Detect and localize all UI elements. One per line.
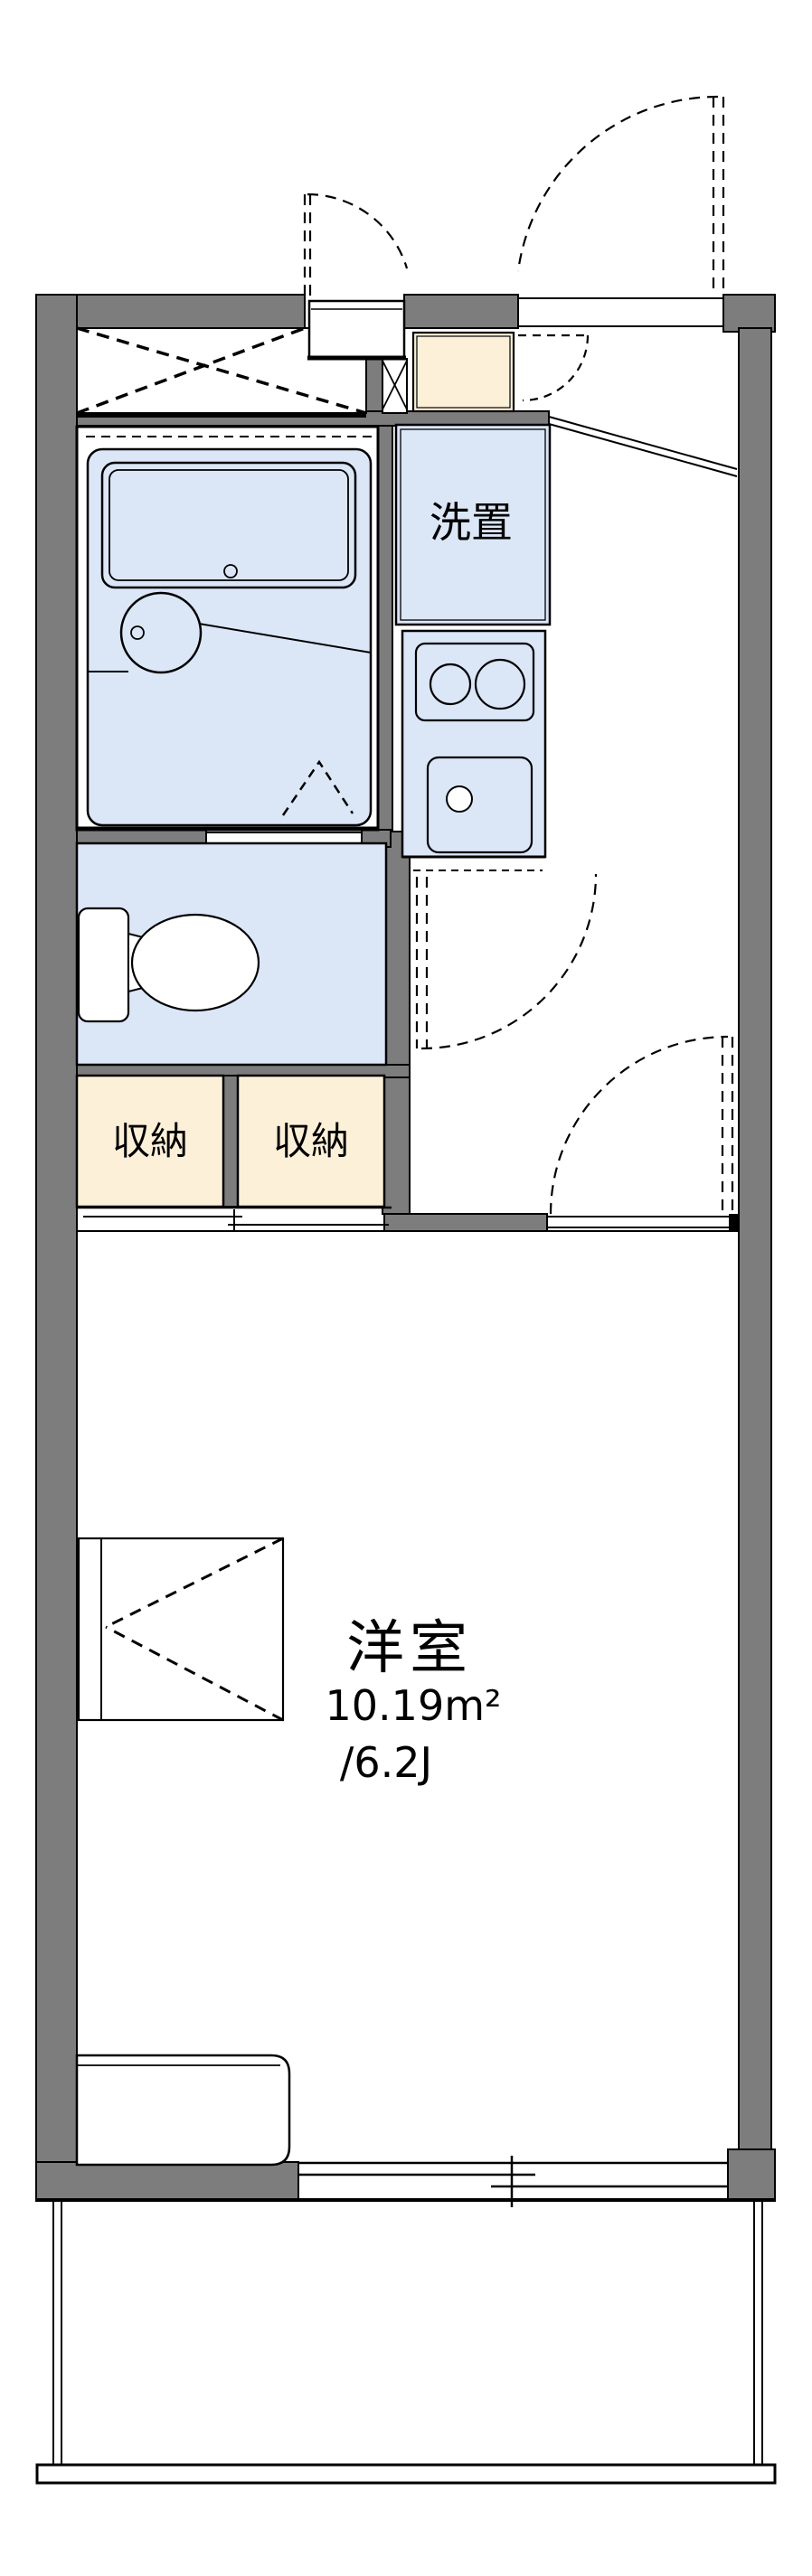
sink-drain-icon [447, 786, 472, 812]
main-room-top-wall [384, 1214, 547, 1231]
left-wall [36, 295, 77, 2201]
floor-plan-drawing: 収納 収納 洗置 [0, 0, 812, 2576]
storage-left-label: 収納 [112, 1119, 188, 1163]
bathroom-right-wall [378, 426, 392, 832]
genkan-step [518, 335, 737, 476]
pipe-shaft [382, 359, 407, 413]
bay-window-box [79, 1538, 283, 1720]
entrance-door-leaf [713, 97, 723, 296]
washroom-door-leaf [417, 877, 427, 1048]
toilet-tank [79, 908, 128, 1021]
alcove-door-arc [307, 194, 407, 268]
burner-left-icon [430, 664, 470, 704]
burner-right-icon [476, 660, 524, 709]
washroom-door-arc [421, 874, 596, 1048]
balcony-right-rail [754, 2201, 762, 2465]
top-wall-right-corner [723, 295, 775, 332]
entrance-alcove [307, 301, 406, 359]
washroom-door-swing [417, 874, 596, 1048]
toilet-room [77, 843, 386, 1065]
kitchen [402, 631, 545, 870]
alcove-door-swing [305, 194, 407, 296]
shoe-cabinet-box [413, 333, 514, 411]
bed [77, 2055, 289, 2165]
bed-outline [77, 2055, 289, 2165]
kitchen-sink [428, 757, 532, 852]
room-area-tatami-label: /6.2J [340, 1738, 432, 1787]
shoe-cabinet [413, 333, 514, 411]
balcony [37, 2201, 775, 2483]
main-room-door-swing [551, 1037, 732, 1214]
storage-right-label: 収納 [273, 1119, 349, 1163]
stub-wall-under-alcove [366, 359, 382, 411]
entrance-door-arc [518, 97, 718, 271]
floor-plan: 収納 収納 洗置 [0, 0, 812, 2576]
alcove-door-leaf [305, 194, 310, 296]
bay-window-desk [79, 1538, 283, 1720]
bathroom [77, 427, 378, 830]
bottom-right-pillar [728, 2149, 775, 2201]
main-room-door-leaf [722, 1037, 732, 1212]
step-line-2 [549, 424, 737, 476]
door-jamb-block [729, 1214, 739, 1231]
room-name-label: 洋室 [346, 1615, 473, 1682]
main-room-door-arc [551, 1037, 728, 1214]
room-labels: 洋室 10.19m² /6.2J [326, 1615, 502, 1787]
storage-divider-wall [223, 1076, 238, 1207]
genkan-door-arc [523, 335, 588, 400]
balcony-railing-bar [37, 2465, 775, 2483]
top-wall-mid [404, 295, 518, 328]
laundry-label: 洗置 [430, 498, 513, 547]
balcony-left-rail [53, 2201, 61, 2465]
bottom-wall-left [36, 2162, 298, 2201]
bathtub [102, 463, 355, 588]
wash-basin [121, 593, 201, 672]
room-area-m2-label: 10.19m² [326, 1681, 502, 1730]
entrance-door-swing [518, 97, 723, 296]
right-wall [739, 328, 771, 2151]
step-line-1 [549, 417, 737, 469]
laundry-space: 洗置 [396, 425, 550, 625]
toilet-bowl [132, 915, 259, 1011]
